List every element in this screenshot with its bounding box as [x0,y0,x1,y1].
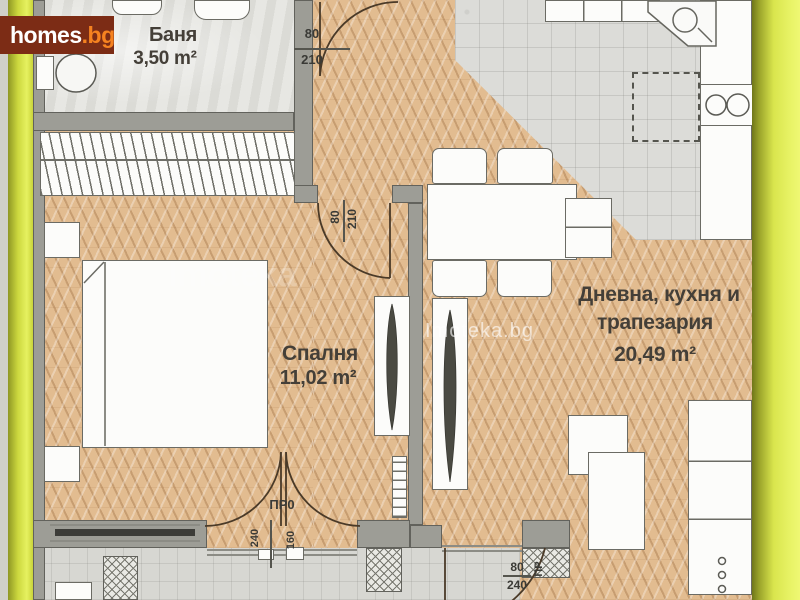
nightstand-1 [44,222,80,258]
terrace-door-height: 240 [498,578,536,592]
balcony-threshold-2 [207,554,357,556]
outer-wall-left [33,0,45,600]
wall-bedroom-top-left [294,185,318,203]
bedroom-door-width: 80 [328,209,342,225]
floorplan-screenshot: Баня 3,50 m² Спалня 11,02 m² Дневна, кух… [0,0,800,600]
balcony-door-tag: ПР0 [256,497,308,512]
terrace-door-threshold-1 [442,545,522,547]
bathroom-area: 3,50 m² [105,49,225,69]
wardrobe-rail [41,159,294,161]
bath-fixture-1 [112,0,162,15]
terrace-furniture [55,582,92,600]
terrace-door-width: 80 [500,560,534,574]
logo-text-main: homes [10,22,82,49]
wall-living-bottom-block [522,520,570,548]
bed-pillow-line [104,262,106,446]
logo-text-suffix: .bg [82,22,115,49]
frame-strip-left [0,0,8,600]
balcony-door-width: 160 [285,525,297,555]
living-label-line2: трапезария [580,312,730,334]
radiator [392,456,407,518]
terrace-door-threshold-2 [442,550,522,552]
wall-bedroom-living [408,203,423,525]
dining-table [427,184,577,260]
living-area: 20,49 m² [596,344,714,366]
plant-stand-1 [374,296,410,436]
imoteka-watermark-faint: Imoteka [168,256,297,295]
wardrobe [40,132,295,196]
bedroom-label: Спалня [262,343,378,365]
chair-top-1 [432,148,487,184]
wall-balcony-jamb [357,520,410,548]
bath-fixture-2 [194,0,250,20]
sofa [688,400,752,595]
column-terrace-2 [366,548,402,592]
bedroom-window-sill-1 [50,524,200,526]
appliance-space [632,72,700,142]
terrace-door-fraction-line [503,575,531,577]
bathroom-label: Баня [118,25,228,46]
balcony-threshold-1 [207,549,357,551]
kitchen-cabinet-island [565,198,612,258]
bath-door-width: 80 [294,26,330,41]
coffee-table-2 [588,452,645,550]
bath-door-height: 210 [292,52,332,67]
frame-bar-right [752,0,800,600]
bedroom-window [55,529,195,536]
wall-bathroom-bottom [33,112,294,131]
terrace-door-tag: ПР [533,558,545,580]
frame-bar-left [8,0,33,600]
cooktop [700,84,755,126]
bedroom-door-height: 210 [345,206,359,232]
balcony-door-height: 240 [249,523,261,553]
imoteka-watermark: Imoteka.bg [425,320,534,343]
chair-bottom-1 [432,260,487,297]
wall-bedroom-top-right [392,185,423,203]
column-terrace-1 [103,556,138,600]
nightstand-2 [44,446,80,482]
living-label-line1: Дневна, кухня и [566,284,752,306]
bedroom-area: 11,02 m² [258,368,378,389]
homes-bg-logo: homes.bg [0,16,114,54]
balcony-door-fraction-line [270,520,272,568]
toilet-tank [36,56,54,90]
bath-door-fraction-line [294,48,350,50]
bedroom-window-sill-2 [50,540,200,542]
kitchen-upper-cabinets [545,0,660,22]
chair-bottom-2 [497,260,552,297]
chair-top-2 [497,148,553,184]
wall-living-bottom-left [410,525,442,548]
